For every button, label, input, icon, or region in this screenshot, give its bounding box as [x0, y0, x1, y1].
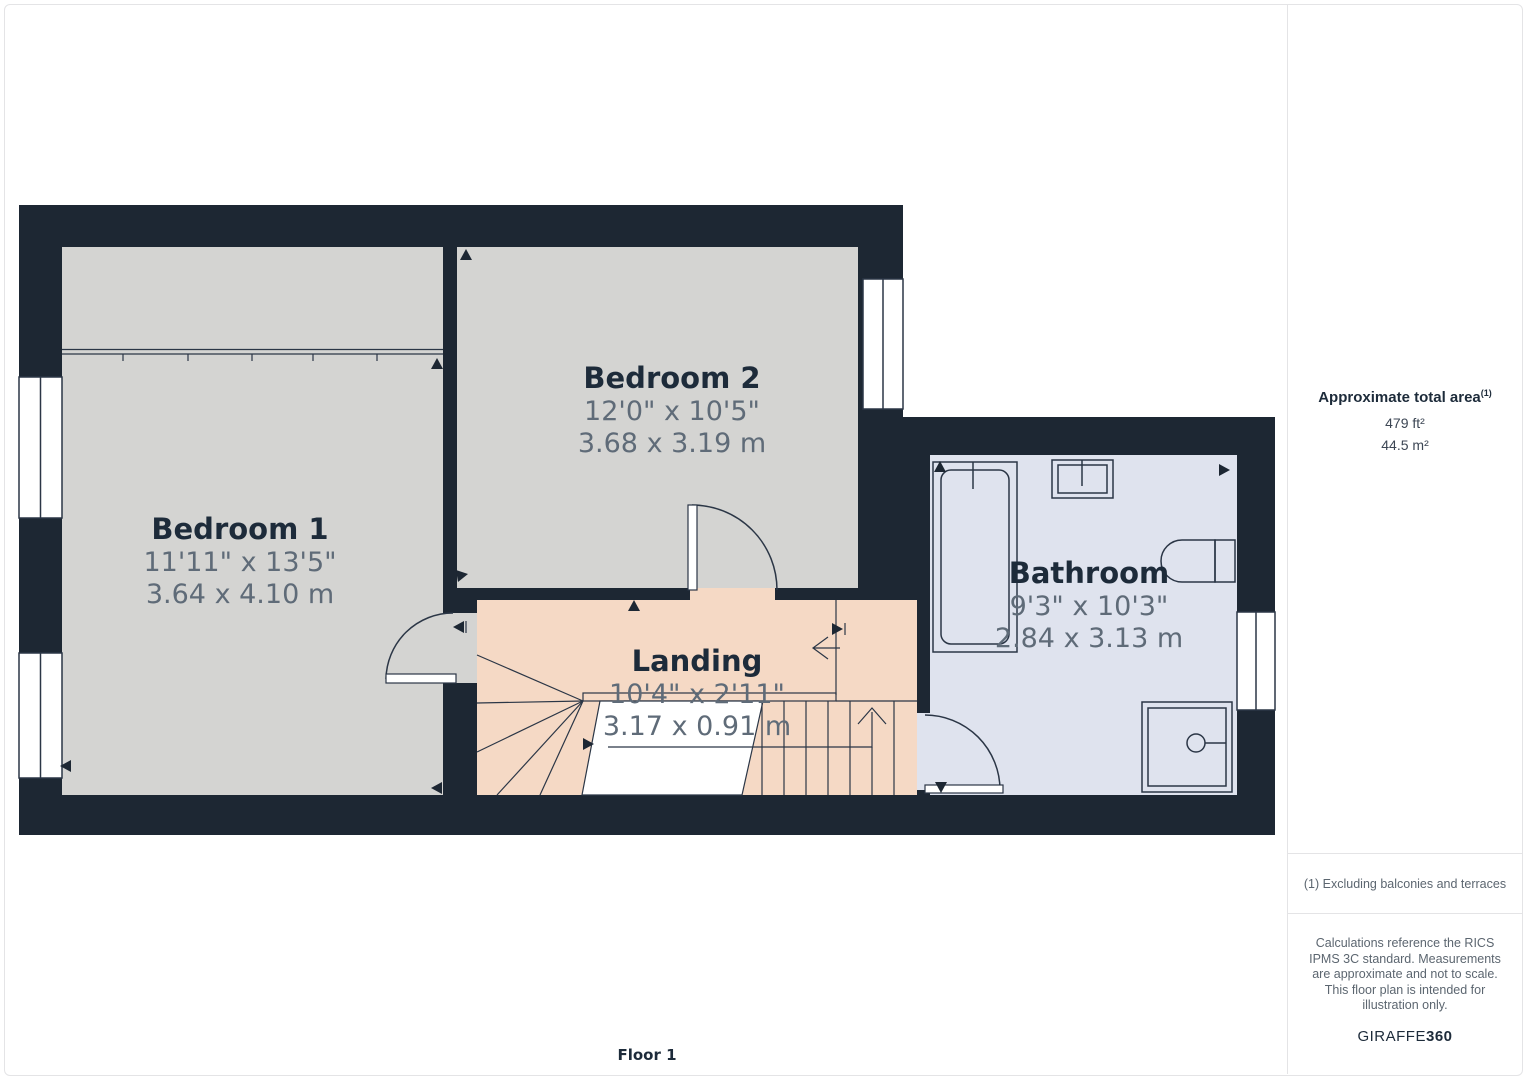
giraffe360-logo: GIRAFFE360	[1357, 1028, 1452, 1045]
total-area-metric: 44.5 m²	[1381, 437, 1428, 453]
disclaimer-text: Calculations reference the RICS IPMS 3C …	[1299, 936, 1511, 1014]
floorplan-page: Bedroom 1 11'11" x 13'5" 3.64 x 4.10 m B…	[0, 0, 1527, 1080]
bedroom2-floor	[457, 247, 858, 588]
window	[19, 653, 62, 778]
section-divider	[1288, 913, 1522, 914]
window	[19, 377, 62, 518]
brand-name: GIRAFFE	[1357, 1028, 1426, 1045]
bedroom1-floor	[62, 247, 443, 795]
brand-bold: 360	[1426, 1028, 1453, 1045]
window	[1237, 612, 1275, 710]
total-area-label: Approximate total area	[1318, 389, 1481, 406]
floor-label: Floor 1	[617, 1046, 676, 1064]
section-divider	[1288, 853, 1522, 854]
total-area-superscript: (1)	[1481, 388, 1492, 398]
stair-void	[582, 701, 763, 795]
floorplan-drawing	[0, 0, 1527, 1080]
bathroom-floor	[930, 455, 1237, 795]
total-area-imperial: 479 ft²	[1385, 415, 1425, 431]
area-footnote: (1) Excluding balconies and terraces	[1304, 877, 1506, 891]
window	[863, 279, 903, 409]
total-area-heading: Approximate total area(1)	[1318, 388, 1492, 406]
